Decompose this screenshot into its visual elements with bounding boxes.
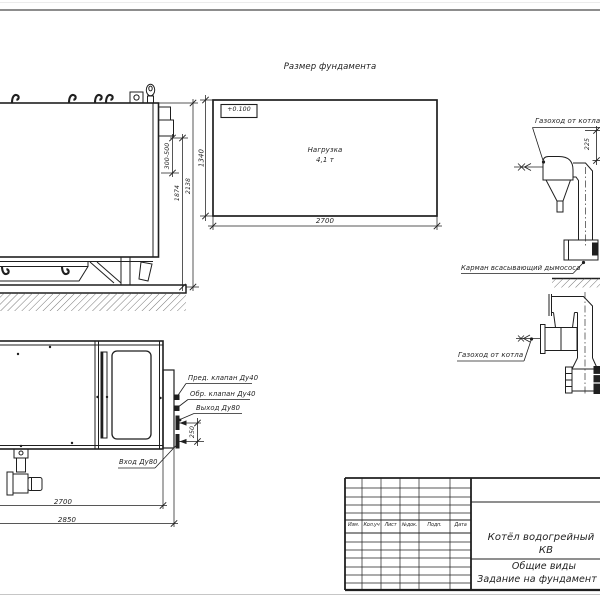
foundation-plan-title: Размер фундамента	[284, 63, 377, 72]
titleblock-col-izm: Изм.	[348, 523, 359, 528]
flue-top-label: Газоход от котла	[535, 118, 600, 125]
side-view-drawing	[0, 84, 199, 311]
titleblock-col-data: Дата	[454, 523, 466, 528]
label-inlet: Вход Ду80	[119, 459, 158, 466]
top-view-drawing	[0, 341, 252, 527]
titleblock-col-koluch: Кол.уч	[363, 523, 379, 528]
dim-height-total: 2138	[185, 178, 191, 194]
dim-foundation-width: 2700	[316, 218, 334, 225]
dim-boiler-length: 2700	[54, 499, 72, 506]
titleblock-product-line2: КВ	[539, 546, 553, 556]
drawing-linework	[0, 0, 600, 600]
dim-foundation-depth: 1340	[198, 149, 205, 167]
drawing-sheet: Размер фундамента +0.100 Нагрузка 4,1 т …	[0, 0, 600, 600]
dim-height-inner: 1874	[175, 185, 181, 201]
titleblock-doc-subtitle: Задание на фундамент	[477, 575, 597, 585]
dim-boiler-overall: 2850	[58, 517, 76, 524]
label-safety-valve: Пред. клапан Ду40	[188, 375, 258, 382]
titleblock-product-line1: Котёл водогрейный	[488, 533, 595, 543]
titleblock-doc-type: Общие виды	[512, 562, 576, 572]
titleblock-col-list: Лист	[385, 523, 397, 528]
titleblock-col-ndok: №док.	[402, 523, 417, 528]
pocket-label: Карман всасывающий дымососа	[461, 265, 580, 272]
load-value: 4,1 т	[316, 157, 334, 164]
elevation-mark: +0.100	[227, 107, 251, 113]
label-outlet: Выход Ду80	[196, 405, 240, 412]
dim-pipe-spacing: 250	[190, 426, 196, 438]
dim-stub-range: 300-500	[165, 143, 171, 170]
flue-detail-bottom-drawing	[457, 292, 600, 396]
dim-flue-225: 225	[585, 138, 591, 150]
load-label: Нагрузка	[308, 147, 343, 154]
label-check-valve: Обр. клапан Ду40	[190, 391, 256, 398]
flue-bottom-label: Газоход от котла	[458, 352, 523, 359]
titleblock-col-podp: Подп.	[427, 523, 441, 528]
